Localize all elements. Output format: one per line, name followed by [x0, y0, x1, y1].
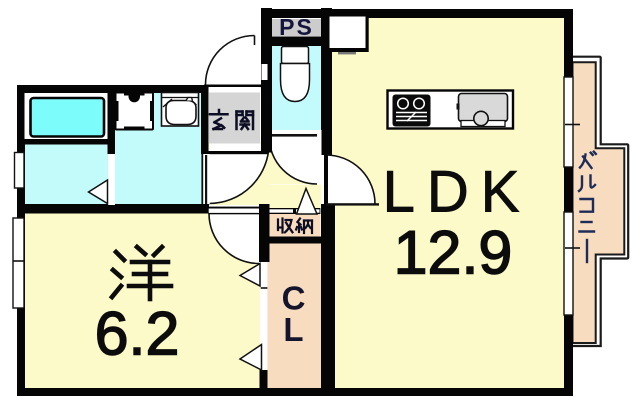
svg-text:12.9: 12.9 — [394, 219, 513, 287]
svg-text:L: L — [283, 311, 303, 348]
svg-text:LDK: LDK — [383, 160, 532, 225]
svg-text:6.2: 6.2 — [95, 300, 180, 368]
svg-text:PS: PS — [279, 14, 314, 40]
